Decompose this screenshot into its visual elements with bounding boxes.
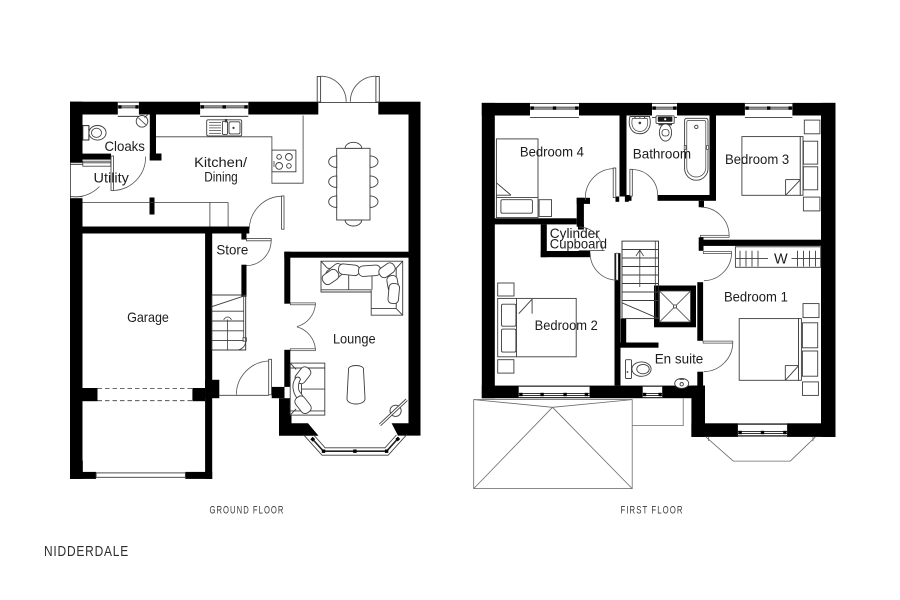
svg-text:Bedroom 3: Bedroom 3	[725, 151, 789, 167]
svg-text:Bedroom 4: Bedroom 4	[520, 144, 584, 160]
svg-text:Bedroom 1: Bedroom 1	[724, 289, 788, 305]
svg-text:Lounge: Lounge	[333, 331, 376, 347]
svg-text:En suite: En suite	[655, 351, 704, 367]
svg-text:Bathroom: Bathroom	[633, 145, 691, 161]
svg-text:FIRST FLOOR: FIRST FLOOR	[621, 505, 684, 517]
svg-text:Garage: Garage	[127, 309, 169, 325]
svg-text:Cupboard: Cupboard	[550, 236, 607, 252]
svg-text:Cloaks: Cloaks	[104, 138, 145, 154]
svg-text:W: W	[774, 252, 788, 268]
svg-text:Utility: Utility	[94, 169, 129, 185]
svg-text:NIDDERDALE: NIDDERDALE	[44, 543, 129, 560]
svg-text:Store: Store	[216, 241, 248, 257]
svg-text:Dining: Dining	[204, 168, 238, 184]
svg-text:Bedroom 2: Bedroom 2	[535, 317, 598, 333]
svg-text:GROUND FLOOR: GROUND FLOOR	[210, 505, 285, 517]
